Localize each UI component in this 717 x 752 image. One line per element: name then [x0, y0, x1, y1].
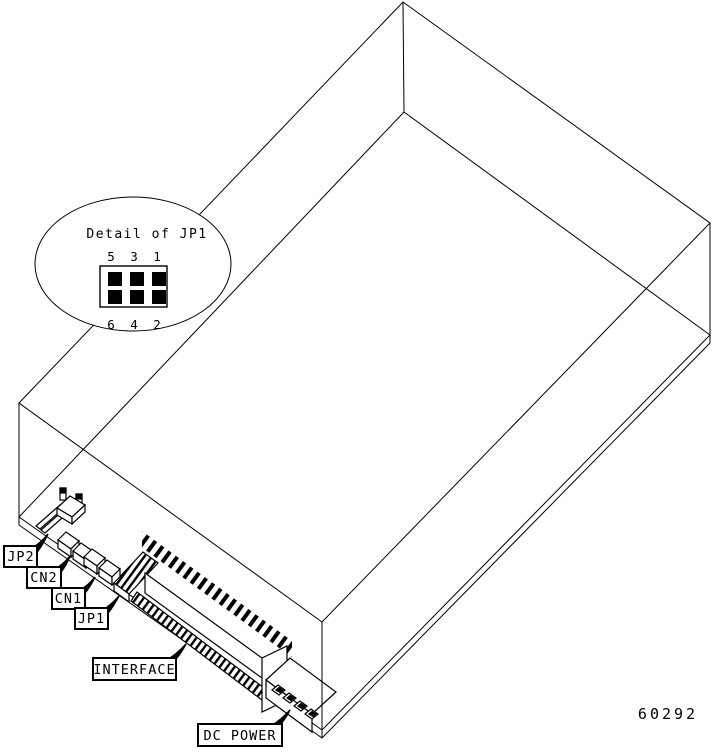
jp2-pin-tip: [60, 488, 66, 493]
pin-number: 2: [153, 317, 161, 332]
jumper-pin: [130, 290, 144, 304]
pin-number: 4: [130, 317, 138, 332]
hard-drive-connector-diagram: Detail of JP1 5 3 1 6 4 2 JP2 CN2 CN1: [0, 0, 717, 752]
chassis-back-vertical-edge: [403, 2, 404, 112]
label-interface: INTERFACE: [93, 644, 186, 680]
label-text: CN1: [55, 591, 82, 607]
callout-ellipse: [35, 197, 231, 331]
callout-title: Detail of JP1: [86, 227, 207, 242]
jumper-pin: [108, 290, 122, 304]
jumper-pin: [108, 272, 122, 286]
chassis-wireframe: [19, 2, 710, 738]
jumper-pin: [130, 272, 144, 286]
pin-number: 6: [107, 317, 115, 332]
label-text: DC POWER: [203, 728, 276, 744]
jp2-connector: [36, 488, 85, 533]
label-text: INTERFACE: [93, 662, 175, 678]
jumper-pin: [152, 290, 166, 304]
jp2-pin-tip: [76, 494, 82, 499]
isometric-drawing: Detail of JP1 5 3 1 6 4 2 JP2 CN2 CN1: [0, 0, 717, 752]
label-text: JP1: [78, 611, 105, 627]
pin-number: 5: [107, 249, 115, 264]
label-text: CN2: [30, 570, 57, 586]
cn1-connector: [84, 549, 120, 585]
jp1-detail-callout: Detail of JP1 5 3 1 6 4 2: [35, 197, 231, 332]
chassis-bottom-back-right-edge: [404, 112, 710, 335]
label-dc-power: DC POWER: [198, 710, 290, 746]
pin-number: 3: [130, 249, 138, 264]
pin-number: 1: [153, 249, 161, 264]
label-jp2: JP2: [4, 534, 48, 567]
figure-number: 60292: [638, 705, 698, 723]
label-text: JP2: [7, 549, 34, 565]
jumper-pin: [152, 272, 166, 286]
interface-lower-pin-row: [131, 592, 268, 700]
